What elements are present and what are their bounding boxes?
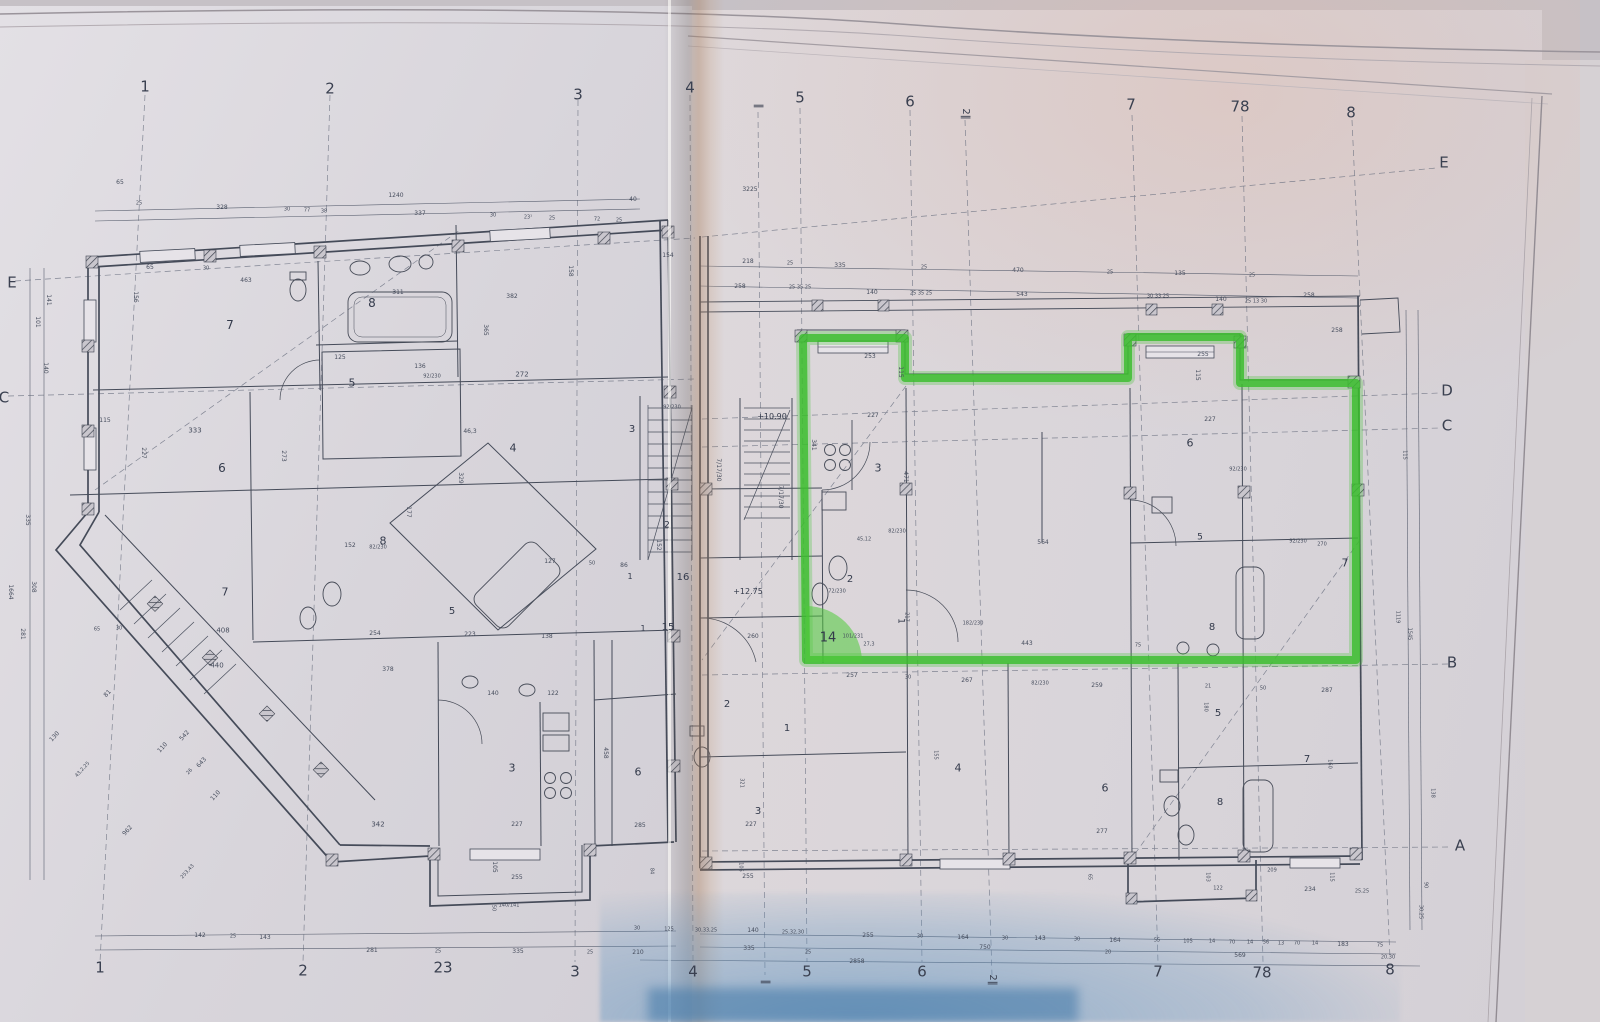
bathtub-icon xyxy=(348,292,452,342)
bathtub-icon xyxy=(1243,780,1273,852)
stove-icon xyxy=(545,773,572,799)
bathtub-icon xyxy=(470,538,563,631)
fold-edge-highlight xyxy=(668,0,671,1022)
sink-icon xyxy=(462,676,478,688)
sink-icon xyxy=(350,261,370,275)
walls-left-page xyxy=(56,220,676,906)
door-swing xyxy=(822,442,870,490)
sink-icon xyxy=(389,256,411,272)
toilet-icon xyxy=(829,556,847,580)
bathtub-icon xyxy=(1236,567,1264,639)
green-door-arc xyxy=(806,606,862,662)
toilet-icon xyxy=(323,582,341,606)
fold-crease xyxy=(664,0,724,1022)
sink-icon xyxy=(519,684,535,696)
stove-icon xyxy=(825,445,851,471)
plan-linework xyxy=(0,0,1600,1022)
toilet-icon xyxy=(290,279,306,301)
sink-icon xyxy=(1160,770,1178,782)
door-swing xyxy=(1130,500,1176,546)
sink-icon xyxy=(419,255,433,269)
door-swing xyxy=(280,360,320,400)
toilet-icon xyxy=(1178,825,1194,845)
floor-plan-photo: 1234‖562‖7788 122334‖562‖7788 EDCBA EC 7… xyxy=(0,0,1600,1022)
blue-stain-dark xyxy=(648,988,1078,1022)
bidet-icon xyxy=(812,583,828,605)
sink-icon xyxy=(1177,642,1189,654)
door-swing xyxy=(438,700,482,744)
kitchen-sink-icon xyxy=(822,492,846,510)
sink-icon xyxy=(1152,497,1172,513)
grid-lines xyxy=(8,95,1452,975)
toilet-icon xyxy=(1164,796,1180,816)
door-swing xyxy=(906,590,958,642)
kitchen-sink-icon xyxy=(543,713,569,731)
green-highlight xyxy=(803,337,1356,662)
